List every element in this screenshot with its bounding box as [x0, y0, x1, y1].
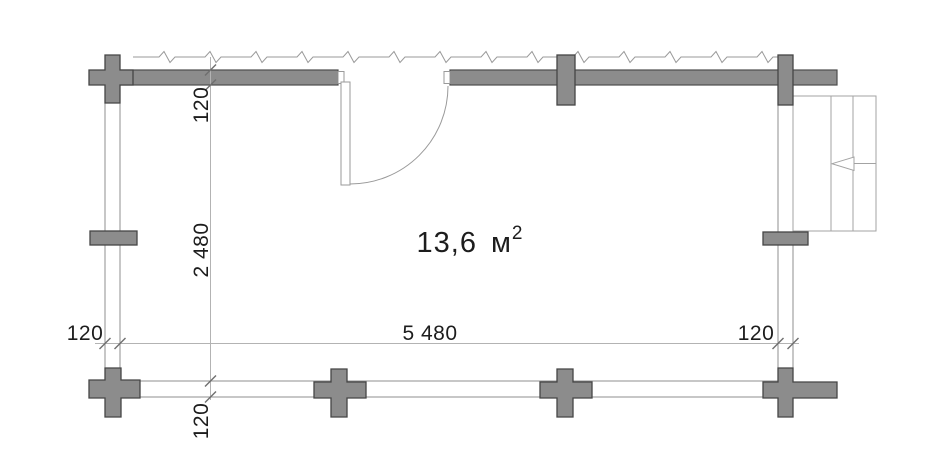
dim-interior-width-label: 5 480: [402, 322, 457, 345]
floor-plan-canvas: 120 2 480 120 120 5 480 120 13,6м2: [0, 0, 940, 470]
break-line: [133, 52, 778, 63]
room-area-text: 13,6м2: [417, 223, 524, 259]
top-wall: [120, 70, 837, 85]
door-swing-arc: [350, 86, 448, 184]
dim-top-wall-thickness-label: 120: [190, 87, 213, 124]
dim-bottom-wall-thickness-label: 120: [190, 403, 213, 440]
floor-plan: 120 2 480 120 120 5 480 120 13,6м2: [0, 0, 940, 470]
post-bottom-right: [763, 368, 837, 417]
stair-direction-arrow-icon: [832, 157, 854, 171]
post-bottom-left: [89, 368, 140, 417]
door: [341, 82, 448, 185]
dim-right-wall-thickness-label: 120: [738, 322, 775, 345]
dim-interior-height-label: 2 480: [190, 222, 213, 277]
area-label: 13,6м2: [417, 223, 524, 259]
door-jamb-right: [444, 72, 450, 84]
area-unit: м: [491, 227, 512, 259]
post-bottom-middle-2: [540, 369, 592, 417]
post-top-right: [778, 55, 793, 105]
post-mid-left: [90, 231, 137, 245]
post-top-left: [89, 55, 133, 103]
dim-left-wall-thickness-label: 120: [67, 322, 104, 345]
top-wall-left-segment: [120, 70, 338, 85]
post-mid-right: [763, 232, 808, 245]
post-bottom-middle-1: [314, 369, 366, 417]
area-superscript: 2: [512, 223, 524, 244]
staircase: [793, 96, 876, 231]
bottom-wall: [113, 381, 786, 397]
area-value: 13,6: [417, 227, 477, 259]
door-leaf: [341, 82, 350, 185]
post-top-middle: [557, 55, 575, 105]
